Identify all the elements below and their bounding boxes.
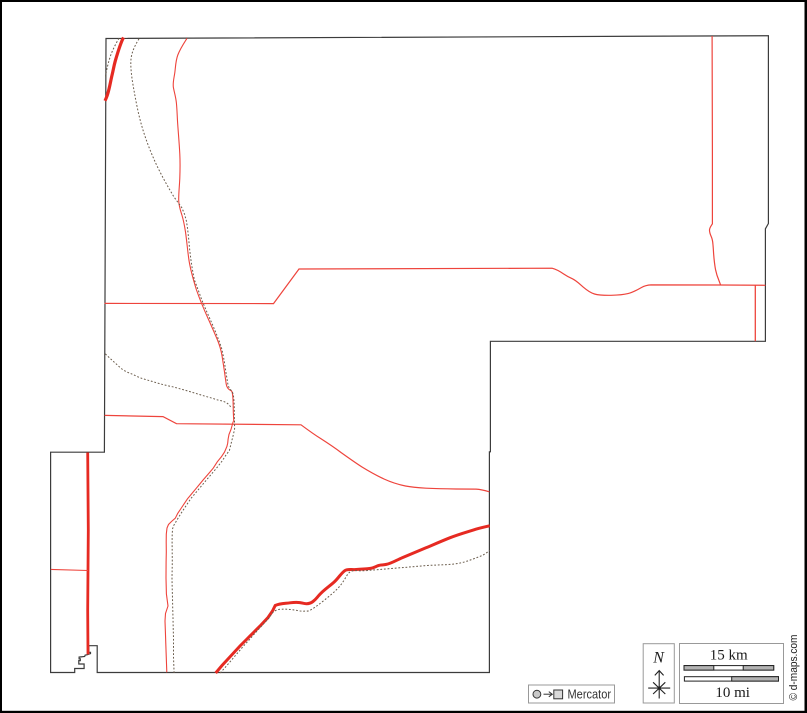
svg-text:Mercator: Mercator [568,688,612,702]
svg-text:N: N [652,650,665,667]
svg-text:10 mi: 10 mi [715,685,750,701]
svg-text:15 km: 15 km [710,648,748,664]
svg-text:© d-maps.com: © d-maps.com [788,635,800,701]
